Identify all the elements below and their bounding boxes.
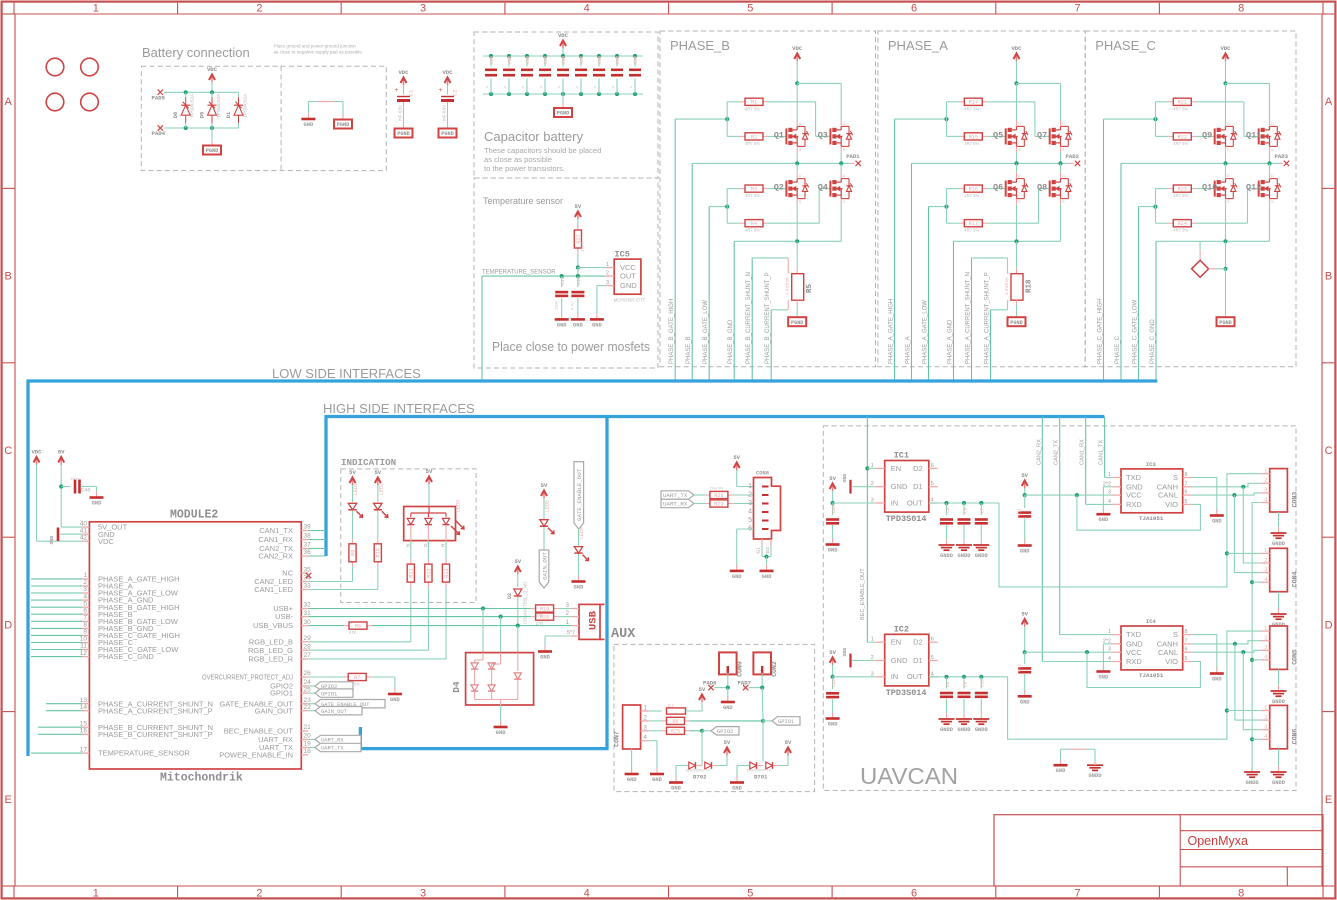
svg-text:OUT: OUT [907,498,923,507]
svg-text:RGB_LED_R: RGB_LED_R [248,655,293,664]
svg-text:GND: GND [574,585,584,591]
svg-text:4: 4 [1264,734,1267,740]
svg-text:C35: C35 [615,55,621,64]
svg-text:3: 3 [1264,567,1267,573]
svg-text:4R7 5%: 4R7 5% [745,106,760,111]
svg-text:u: u [611,86,615,88]
svg-text:to the power transistors.: to the power transistors. [484,164,565,173]
svg-text:5: 5 [748,517,752,524]
svg-text:PAD6: PAD6 [703,680,717,687]
svg-text:CAN2_RX: CAN2_RX [1036,439,1042,465]
svg-text:6: 6 [911,888,917,900]
svg-text:3: 3 [1264,725,1267,731]
svg-text:VDC: VDC [398,69,409,76]
svg-text:GND: GND [1212,519,1222,525]
svg-text:31: 31 [304,610,312,617]
svg-text:9: 9 [83,629,87,636]
svg-text:7: 7 [1185,481,1188,487]
svg-text:C9: C9 [963,681,968,687]
svg-text:GNDD: GNDD [975,553,989,559]
svg-text:GNDD: GNDD [940,727,954,733]
svg-text:PGND: PGND [1010,320,1022,326]
svg-text:Q10: Q10 [1202,183,1217,193]
svg-text:G2: G2 [765,547,771,554]
svg-text:Q2: Q2 [774,183,784,193]
svg-text:UAVCAN: UAVCAN [860,763,958,789]
svg-text:CAN2_TX: CAN2_TX [1054,440,1060,465]
svg-text:D: D [1227,122,1230,126]
svg-text:RGB_LED_G: RGB_LED_G [248,646,293,655]
svg-text:14: 14 [80,704,88,711]
svg-text:These capacitors should be pla: These capacitors should be placed [484,146,601,155]
svg-text:GNDD: GNDD [1246,780,1260,786]
svg-text:5V: 5V [699,686,706,693]
svg-text:u: u [575,86,579,88]
svg-text:PAD5: PAD5 [152,95,166,102]
svg-text:CON3: CON3 [1292,492,1299,508]
svg-text:27: 27 [304,652,312,659]
svg-text:PHASE_B_GATE_HIGH: PHASE_B_GATE_HIGH [669,299,675,364]
svg-text:LED2: LED2 [378,483,384,495]
svg-text:D4: D4 [451,681,462,693]
svg-text:C22: C22 [832,679,837,687]
svg-text:GND: GND [842,648,848,657]
svg-text:3: 3 [748,500,752,507]
svg-text:LED4: LED4 [579,527,585,539]
svg-text:12: 12 [80,650,88,657]
svg-text:IC1: IC1 [894,451,909,461]
svg-text:PHASE_A_CURRENT_SHUNT_P: PHASE_A_CURRENT_SHUNT_P [985,272,991,364]
svg-text:2: 2 [1264,478,1267,484]
svg-text:Q8: Q8 [1037,183,1047,193]
svg-text:PHASE_B: PHASE_B [670,38,730,53]
svg-text:4: 4 [1264,655,1267,661]
svg-text:C14: C14 [576,276,582,285]
svg-text:C5: C5 [946,507,951,513]
svg-text:TEMPERATURE_SENSOR: TEMPERATURE_SENSOR [98,749,191,758]
svg-text:6: 6 [1185,647,1188,653]
svg-text:4: 4 [83,593,87,600]
svg-text:B: B [5,271,12,283]
svg-text:4R7 5%: 4R7 5% [745,141,760,146]
svg-text:C11: C11 [1018,508,1023,516]
svg-text:R6: R6 [355,624,361,630]
svg-text:23: 23 [304,697,312,704]
svg-text:10: 10 [80,636,88,643]
svg-text:1: 1 [1264,548,1267,554]
svg-text:VCC: VCC [1126,648,1142,657]
svg-text:Q12: Q12 [1246,183,1261,193]
svg-text:29: 29 [304,635,312,642]
svg-text:1: 1 [83,572,87,579]
svg-text:D1: D1 [913,482,923,491]
svg-text:D702: D702 [693,774,707,781]
svg-text:TPD3S014: TPD3S014 [886,514,927,524]
svg-text:41: 41 [80,527,88,534]
svg-text:UART_RX: UART_RX [663,501,688,508]
svg-text:5V: 5V [58,449,65,456]
svg-text:GPIO1: GPIO1 [321,691,337,697]
svg-text:C13: C13 [560,276,566,285]
svg-text:GND: GND [92,501,102,507]
svg-text:6: 6 [83,607,87,614]
svg-text:C12: C12 [1018,664,1023,672]
svg-text:D701: D701 [754,774,768,781]
svg-text:4: 4 [584,3,590,15]
svg-text:2: 2 [606,271,609,277]
svg-text:4R7 5%: 4R7 5% [964,228,979,233]
svg-text:Q9: Q9 [1202,130,1212,140]
svg-text:R12: R12 [426,568,432,577]
svg-text:GNDD: GNDD [1272,622,1286,628]
svg-text:LED1: LED1 [353,483,359,495]
svg-text:u: u [539,86,543,88]
svg-text:7: 7 [1185,638,1188,644]
svg-text:GND: GND [1020,549,1030,555]
svg-text:D2: D2 [913,638,923,647]
svg-text:4R7 5%: 4R7 5% [964,141,979,146]
svg-text:32: 32 [304,602,312,609]
svg-text:GNDD: GNDD [958,553,972,559]
svg-text:OUT: OUT [907,672,923,681]
svg-text:u: u [485,86,489,88]
svg-text:PAD2: PAD2 [1066,153,1080,160]
svg-text:CANL: CANL [1158,648,1178,657]
svg-text:mF 63V: mF 63V [398,104,403,121]
svg-text:4R7 5%: 4R7 5% [1173,141,1188,146]
svg-text:PHASE_C_GATE_HIGH: PHASE_C_GATE_HIGH [1098,298,1104,364]
svg-text:C: C [1325,445,1333,457]
svg-text:GND: GND [620,281,637,290]
svg-text:1: 1 [748,483,752,490]
svg-text:+: + [439,87,443,94]
svg-text:CON2: CON2 [771,661,778,677]
svg-text:IC3: IC3 [1146,462,1156,468]
svg-text:Q7: Q7 [1037,130,1047,140]
svg-text:4R7 5%: 4R7 5% [745,228,760,233]
svg-text:TEMPERATURE_SENSOR: TEMPERATURE_SENSOR [482,270,556,276]
svg-text:R14: R14 [969,100,978,106]
svg-text:PHASE_C_GND: PHASE_C_GND [98,652,154,661]
svg-text:1: 1 [93,888,99,900]
svg-text:LED5: LED5 [545,500,551,512]
svg-text:38: 38 [304,533,312,540]
svg-text:VDC: VDC [31,449,42,456]
svg-text:D1: D1 [226,112,232,118]
svg-text:as close as possible: as close as possible [484,155,552,164]
svg-text:5V: 5V [829,475,836,482]
svg-text:2: 2 [1264,715,1267,721]
svg-text:D: D [1018,122,1021,126]
svg-text:GND: GND [540,655,550,661]
svg-text:TJA1051: TJA1051 [1139,672,1164,679]
svg-text:D: D [843,174,846,178]
svg-text:C: C [4,445,12,457]
svg-text:1: 1 [93,3,99,15]
svg-text:4R7 5%: 4R7 5% [1173,106,1188,111]
svg-text:OUT: OUT [620,272,636,281]
svg-text:GPIO1: GPIO1 [778,719,794,725]
svg-text:R25: R25 [671,729,680,735]
svg-text:mF 63V: mF 63V [442,104,447,121]
svg-text:27R: 27R [536,621,544,626]
svg-text:u: u [557,86,561,88]
svg-text:GATE_ENABLE_OUT: GATE_ENABLE_OUT [576,468,583,521]
svg-text:CON5: CON5 [1292,649,1299,665]
svg-text:Place close to power mosfets: Place close to power mosfets [492,340,650,354]
svg-text:1: 1 [1264,469,1267,475]
svg-text:16: 16 [80,728,88,735]
svg-text:TXD: TXD [1126,473,1142,482]
svg-text:18: 18 [304,748,312,755]
svg-text:5: 5 [83,600,87,607]
svg-text:4: 4 [584,888,590,900]
svg-text:30: 30 [304,619,312,626]
svg-text:VDC: VDC [792,45,803,52]
svg-text:A: A [1325,96,1333,108]
svg-text:INDICATION: INDICATION [341,457,396,468]
svg-text:E: E [1325,794,1332,806]
svg-text:VDC: VDC [558,32,569,39]
svg-text:5: 5 [747,888,753,900]
svg-text:TPSMC62A: TPSMC62A [190,93,195,118]
svg-text:D: D [799,174,802,178]
svg-text:GND: GND [891,656,908,665]
svg-text:C8: C8 [946,681,951,687]
svg-text:47k: 47k [349,630,357,635]
svg-text:VDC: VDC [207,66,218,73]
svg-text:TPSMC62A: TPSMC62A [242,93,247,118]
svg-text:GND: GND [723,705,733,711]
svg-text:G: G [423,543,428,547]
svg-text:2: 2 [83,579,87,586]
svg-text:Place ground and power ground: Place ground and power ground junction [274,44,357,49]
svg-text:1 mOhm: 1 mOhm [785,277,790,295]
svg-text:6: 6 [1185,490,1188,496]
svg-text:8: 8 [1238,888,1244,900]
svg-text:GNDD: GNDD [1272,541,1286,547]
svg-text:R23: R23 [1178,187,1187,193]
svg-text:+: + [395,87,399,94]
svg-text:PHASE_A_GATE_HIGH: PHASE_A_GATE_HIGH [889,299,895,364]
svg-text:A: A [5,96,13,108]
svg-text:CAN1_TX: CAN1_TX [1099,440,1105,465]
svg-text:TPSMC62A: TPSMC62A [216,93,221,118]
svg-text:PGND: PGND [557,111,569,117]
svg-text:PGND: PGND [397,131,409,137]
svg-text:VDC: VDC [98,537,114,546]
svg-text:G1: G1 [756,547,762,554]
svg-text:Q3: Q3 [818,130,828,140]
svg-text:Q11: Q11 [1246,130,1261,140]
svg-text:C36: C36 [597,55,603,64]
svg-text:36: 36 [304,549,312,556]
svg-text:CAN1_RX: CAN1_RX [1080,439,1086,465]
svg-text:C1: C1 [409,90,415,96]
svg-text:MODULE2: MODULE2 [170,509,218,522]
svg-text:D: D [1271,122,1274,126]
svg-text:PHASE_B_CURRENT_SHUNT_P: PHASE_B_CURRENT_SHUNT_P [765,272,771,364]
svg-text:1: 1 [1264,705,1267,711]
svg-text:7: 7 [1075,888,1081,900]
svg-text:Capacitor battery: Capacitor battery [484,129,583,144]
svg-text:GND: GND [762,574,772,580]
svg-text:5V: 5V [349,469,356,476]
svg-text:TXD: TXD [1126,630,1142,639]
svg-text:5: 5 [1185,499,1188,505]
svg-text:21: 21 [304,724,312,731]
svg-text:4R7 5%: 4R7 5% [1173,228,1188,233]
svg-text:CON4: CON4 [1292,571,1299,587]
svg-text:VIO: VIO [1165,657,1178,666]
svg-text:GND: GND [732,574,742,580]
svg-text:GND: GND [828,548,838,554]
svg-text:RXD: RXD [1126,500,1142,509]
svg-text:BAV99DW-T-F: BAV99DW-T-F [747,769,772,773]
svg-text:5V: 5V [1021,472,1028,479]
svg-text:PHASE_B_CURRENT_SHUNT_P: PHASE_B_CURRENT_SHUNT_P [98,730,213,739]
svg-text:6: 6 [931,637,934,643]
svg-text:CAN1_RX: CAN1_RX [258,535,293,544]
svg-text:PGND: PGND [206,148,218,154]
svg-text:DNI 0R: DNI 0R [710,486,723,491]
svg-text:GND: GND [671,786,681,792]
svg-text:OpenMyxa: OpenMyxa [1188,834,1248,848]
svg-text:R18: R18 [1026,279,1034,293]
svg-text:PHASE_C: PHASE_C [1095,38,1156,53]
svg-text:TJA1051: TJA1051 [1139,515,1164,522]
svg-text:5V: 5V [374,469,381,476]
svg-text:F1: F1 [668,704,674,710]
svg-text:C2: C2 [453,90,459,96]
svg-text:C32: C32 [543,55,549,64]
svg-text:C7: C7 [981,507,986,513]
svg-text:RXD: RXD [1126,657,1142,666]
svg-text:GND: GND [627,777,637,783]
svg-text:S: S [1173,473,1178,482]
svg-text:R29: R29 [714,501,723,507]
svg-text:PHASE_C: PHASE_C [1115,335,1121,364]
svg-text:IC4: IC4 [1146,619,1156,625]
svg-text:S: S [1173,630,1178,639]
svg-text:Temperature sensor: Temperature sensor [483,196,563,206]
svg-text:2: 2 [1264,558,1267,564]
svg-text:4R7 5%: 4R7 5% [964,106,979,111]
svg-text:C46: C46 [81,488,90,494]
svg-text:GND: GND [1056,768,1066,774]
svg-text:D: D [799,122,802,126]
svg-text:GND: GND [496,730,506,736]
svg-text:PHASE_A_GND: PHASE_A_GND [948,319,954,364]
svg-text:40: 40 [80,520,88,527]
svg-text:E: E [5,794,12,806]
svg-text:UART_TX: UART_TX [321,746,344,752]
svg-text:4R7 5%: 4R7 5% [964,193,979,198]
svg-text:CON7: CON7 [614,731,621,747]
svg-text:BAV99DW-T-F: BAV99DW-T-F [686,769,711,773]
svg-text:USB: USB [588,610,600,630]
svg-text:GND: GND [592,322,602,328]
svg-text:C20: C20 [832,505,837,513]
svg-text:R13: R13 [444,568,450,577]
svg-text:R11: R11 [409,568,415,577]
svg-text:5V: 5V [575,203,582,210]
svg-text:D: D [1325,619,1333,631]
svg-text:5V: 5V [514,558,521,565]
svg-text:C34: C34 [579,55,585,64]
svg-text:4R7 5%: 4R7 5% [745,193,760,198]
svg-text:100n: 100n [554,301,559,310]
svg-text:as close to negative supply pa: as close to negative supply pad as possi… [274,50,363,55]
svg-text:R10: R10 [376,548,382,557]
svg-text:VDC: VDC [1220,45,1231,52]
svg-text:11: 11 [80,643,87,650]
svg-text:35: 35 [304,566,312,573]
svg-text:PHASE_A: PHASE_A [906,336,912,364]
svg-text:5*7: 5*7 [567,630,575,636]
svg-text:GND: GND [842,474,848,483]
svg-text:8: 8 [1185,629,1188,635]
svg-text:Q5: Q5 [993,130,1003,140]
svg-text:IC5: IC5 [615,250,630,260]
svg-text:VCC: VCC [1126,491,1142,500]
svg-text:B: B [405,544,410,547]
svg-text:R1: R1 [751,100,757,106]
svg-text:20: 20 [304,733,312,740]
svg-text:USB-: USB- [275,612,293,621]
svg-text:PAD1: PAD1 [846,153,860,160]
svg-text:USB_VBUS: USB_VBUS [253,621,293,630]
svg-text:PAD4: PAD4 [152,130,166,137]
svg-text:39: 39 [304,524,312,531]
svg-text:R3: R3 [751,187,757,193]
svg-text:GAIN_OUT: GAIN_OUT [321,709,348,715]
svg-text:R8: R8 [672,719,678,725]
svg-text:GND: GND [49,536,55,545]
svg-text:1: 1 [606,262,609,268]
svg-text:2: 2 [748,492,752,499]
svg-text:u: u [521,86,525,88]
svg-text:GND: GND [1212,677,1222,683]
svg-text:R28: R28 [714,493,723,499]
svg-text:GND: GND [652,777,662,783]
svg-text:6: 6 [911,3,917,15]
svg-text:CAN1_TX: CAN1_TX [259,526,293,535]
svg-text:1: 1 [1264,626,1267,632]
svg-text:PHASE_A: PHASE_A [888,38,948,53]
svg-text:28: 28 [304,643,312,650]
svg-text:C38: C38 [525,55,531,64]
svg-text:D2: D2 [507,593,513,599]
svg-text:C37: C37 [633,55,639,64]
svg-text:HIGH SIDE INTERFACES: HIGH SIDE INTERFACES [323,401,475,416]
svg-text:u: u [629,86,633,88]
svg-text:5: 5 [1185,656,1188,662]
svg-text:3: 3 [420,888,426,900]
svg-text:IN: IN [891,672,899,681]
svg-text:TPD3S014: TPD3S014 [886,688,927,698]
svg-text:C33: C33 [561,55,567,64]
svg-text:C30: C30 [507,55,513,64]
svg-text:GPIO1: GPIO1 [270,689,293,698]
svg-text:D: D [4,619,12,631]
svg-text:19: 19 [304,741,312,748]
svg-text:R19: R19 [540,606,549,612]
svg-text:26: 26 [304,670,312,677]
svg-text:R21: R21 [1178,100,1187,106]
svg-text:GAIN_OUT: GAIN_OUT [541,552,548,580]
svg-text:5V: 5V [724,739,731,746]
